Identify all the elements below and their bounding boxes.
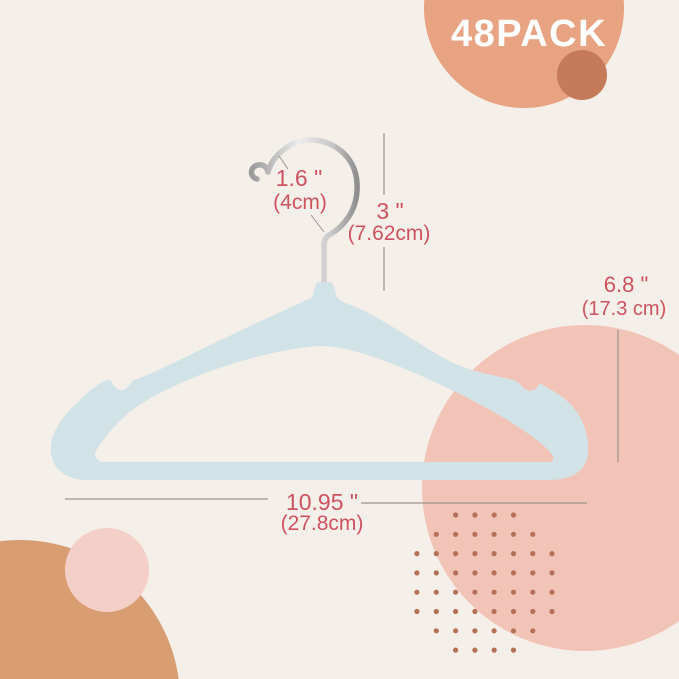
scene-canvas — [0, 0, 679, 679]
decor-dot — [549, 590, 554, 595]
decor-dot — [434, 590, 439, 595]
decor-dot — [511, 590, 516, 595]
hanger-width-inches-label: 10.95 " — [286, 491, 358, 514]
decor-dot — [434, 570, 439, 575]
decor-dot — [511, 648, 516, 653]
pack-count-badge: 48PACK — [451, 15, 607, 53]
decor-circle-terracotta-small — [557, 50, 607, 100]
hook-width-inches-label: 1.6 " — [276, 167, 323, 190]
decor-dot — [434, 532, 439, 537]
decor-dot — [472, 532, 477, 537]
decor-dot — [492, 648, 497, 653]
decor-dot — [414, 551, 419, 556]
decor-dot — [414, 570, 419, 575]
decor-dot — [453, 648, 458, 653]
decor-dot — [511, 570, 516, 575]
decor-dot — [414, 609, 419, 614]
decor-dot — [472, 590, 477, 595]
decor-dot — [530, 609, 535, 614]
hanger-width-metric-label: (27.8cm) — [281, 513, 364, 534]
decor-dot — [530, 628, 535, 633]
decor-dot — [511, 532, 516, 537]
decor-dot — [492, 570, 497, 575]
decor-dot — [492, 512, 497, 517]
decor-dot — [472, 551, 477, 556]
decor-dot — [511, 628, 516, 633]
decor-dot — [453, 532, 458, 537]
decor-dot — [492, 590, 497, 595]
decor-dot — [492, 628, 497, 633]
decor-dot — [472, 512, 477, 517]
leader-line-hook-stem — [311, 215, 324, 232]
decor-dot — [472, 648, 477, 653]
decor-dot — [472, 609, 477, 614]
decor-dot — [434, 628, 439, 633]
decor-dot — [414, 590, 419, 595]
decor-dot — [472, 570, 477, 575]
hanger-height-metric-label: (17.3 cm) — [582, 299, 666, 319]
decor-dot — [549, 609, 554, 614]
decor-circle-blush-small — [65, 528, 149, 612]
decor-dot — [492, 551, 497, 556]
hook-height-metric-label: (7.62cm) — [348, 223, 431, 244]
decor-dot — [530, 551, 535, 556]
decor-dot — [511, 609, 516, 614]
decor-dot — [549, 551, 554, 556]
decor-dot — [453, 628, 458, 633]
decor-dot — [472, 628, 477, 633]
decor-dot — [549, 570, 554, 575]
decor-dot — [453, 590, 458, 595]
decor-dot — [453, 551, 458, 556]
decor-dot — [453, 512, 458, 517]
hook-width-metric-label: (4cm) — [273, 192, 327, 213]
decor-dot — [492, 609, 497, 614]
decor-dot — [511, 551, 516, 556]
product-dimension-image: 48PACK 1.6 " (4cm) 3 " (7.62cm) 6.8 " (1… — [0, 0, 679, 679]
decor-dot — [530, 570, 535, 575]
decor-dot — [453, 609, 458, 614]
decor-dot — [530, 532, 535, 537]
decor-dot — [453, 570, 458, 575]
decor-dot — [492, 532, 497, 537]
decor-dot — [434, 609, 439, 614]
decor-dot — [434, 551, 439, 556]
decor-dot — [511, 512, 516, 517]
decor-dot — [530, 590, 535, 595]
hanger-height-inches-label: 6.8 " — [604, 274, 649, 296]
hook-height-inches-label: 3 " — [376, 200, 403, 223]
hanger-hook-icon — [251, 140, 357, 292]
